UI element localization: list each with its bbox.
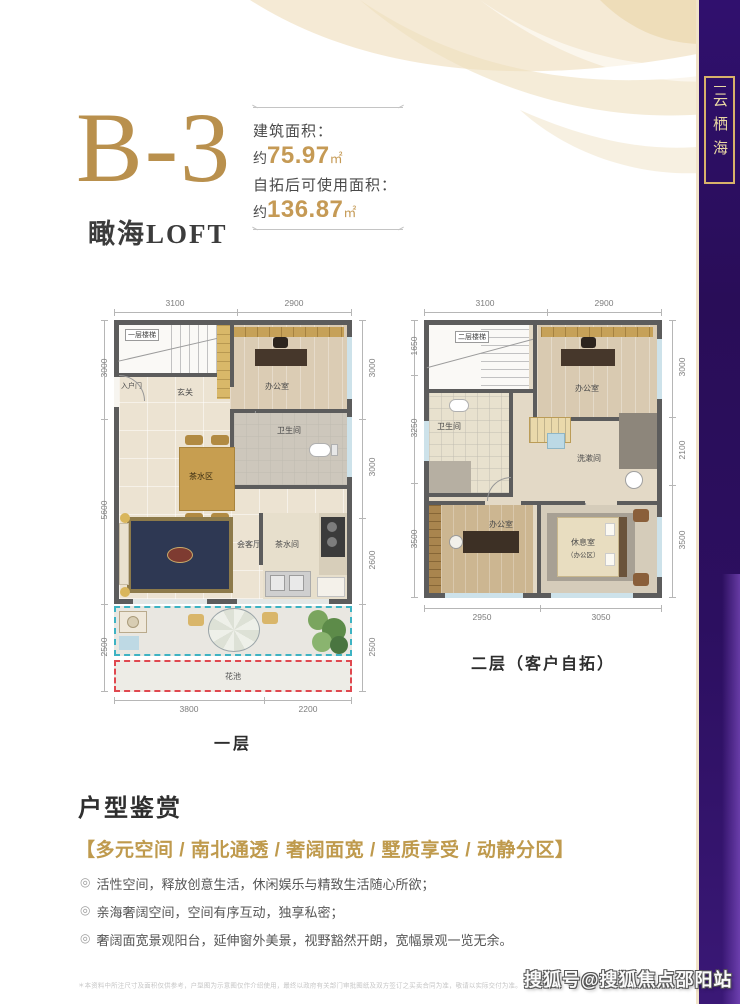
- balcony-door: [133, 599, 207, 604]
- balcony-door: [237, 599, 329, 604]
- floor2-building: 二层楼梯 办公室 卫生间 洗漱间: [424, 320, 662, 598]
- window: [424, 421, 429, 461]
- entry-door-arc: [119, 375, 145, 401]
- floor2-dim-top-1: 3100: [455, 298, 515, 308]
- office2-chair: [449, 535, 463, 549]
- toilet: [449, 399, 469, 412]
- floor1-stairs-label: 一层楼梯: [125, 329, 159, 341]
- built-area-unit: ㎡: [330, 151, 343, 166]
- dim-tick: [264, 697, 265, 704]
- office-floor: [537, 325, 657, 417]
- floor1-dim-right-2: 3000: [367, 447, 377, 487]
- floor2-dim-right-2: 2100: [677, 430, 687, 470]
- window: [657, 517, 662, 577]
- bullet-item: ◎ 活性空间，释放创意生活，休闲娱乐与精致生活随心所欲；: [80, 874, 513, 893]
- floor1-foyer-label: 玄关: [177, 387, 193, 398]
- poster-page: 云栖海 B-3 瞰海LOFT 建筑面积： 约75.97㎡ 自拓后可使用面积： 约…: [0, 0, 740, 1004]
- dim-line: [362, 320, 363, 692]
- window: [347, 337, 352, 399]
- dim-tick: [351, 697, 352, 704]
- dim-tick: [669, 597, 676, 598]
- sink-basin: [289, 575, 304, 591]
- dark-tile: [619, 413, 657, 469]
- dim-tick: [114, 697, 115, 704]
- wall: [230, 325, 234, 387]
- floor1-dim-right-1: 3000: [367, 348, 377, 388]
- dim-line: [424, 312, 662, 313]
- floor1-pantry-label: 茶水间: [275, 539, 299, 550]
- floor1-dim-bottom-2: 2200: [278, 704, 338, 714]
- dim-tick: [669, 320, 676, 321]
- project-name-box: 云栖海: [704, 76, 735, 184]
- burner: [327, 522, 337, 532]
- pillow: [605, 523, 615, 536]
- unit-code: B-3: [76, 98, 232, 198]
- rug-medallion: [167, 547, 193, 563]
- usable-area-unit: ㎡: [343, 205, 356, 220]
- window: [445, 593, 523, 598]
- floor2-lounge-sub-label: （办公区）: [567, 549, 600, 559]
- nightstand: [633, 509, 649, 522]
- bullet-item: ◎ 奢阔面宽景观阳台，延伸窗外美景，视野豁然开朗，宽幅景观一览无余。: [80, 930, 513, 949]
- office-closet: [233, 327, 344, 337]
- floor1-balcony: [114, 606, 352, 656]
- dim-tick: [359, 419, 366, 420]
- floor1-dim-left-3: 2500: [99, 627, 109, 667]
- floor1-flower-bed: 花池: [114, 660, 352, 692]
- dim-tick: [411, 597, 418, 598]
- floor1-dim-bottom-1: 3800: [159, 704, 219, 714]
- watermark: 搜狐号@搜狐焦点邵阳站: [524, 966, 733, 992]
- office-desk: [561, 349, 615, 366]
- floor1-caption: 一层: [96, 730, 370, 754]
- spec-block: 建筑面积： 约75.97㎡ 自拓后可使用面积： 约136.87㎡: [253, 120, 463, 229]
- dim-tick: [101, 320, 108, 321]
- floor2-dim-top-2: 2900: [574, 298, 634, 308]
- bookshelf: [429, 505, 441, 593]
- dim-tick: [359, 320, 366, 321]
- stair-treads: [171, 325, 217, 373]
- balcony-cabinet: [119, 611, 147, 633]
- dim-tick: [661, 309, 662, 316]
- plants: [308, 608, 350, 654]
- dim-tick: [411, 483, 418, 484]
- floor1-dim-right-4: 2500: [367, 627, 377, 667]
- nightstand: [633, 573, 649, 586]
- floor2-lounge-label: 休息室: [571, 537, 595, 548]
- plant: [312, 632, 332, 652]
- appreciation-highlight: 【多元空间 / 南北通透 / 奢阔面宽 / 墅质享受 / 动静分区】: [76, 835, 574, 862]
- chair: [185, 435, 203, 445]
- floor1-dim-top-1: 3100: [145, 298, 205, 308]
- dim-tick: [669, 417, 676, 418]
- dim-tick: [359, 691, 366, 692]
- office-desk: [255, 349, 307, 366]
- floor-lamp: [120, 587, 130, 597]
- floor1-living-label: 会客厅: [237, 539, 261, 550]
- floor-lamp: [120, 513, 130, 523]
- window: [347, 417, 352, 477]
- approx-prefix-2: 约: [253, 204, 267, 220]
- toilet-tank: [331, 444, 338, 456]
- floor1-dim-right-3: 2600: [367, 540, 377, 580]
- floor2-bathroom-label: 卫生间: [437, 421, 461, 432]
- banner-dash: [714, 86, 726, 87]
- floor1-dim-left-1: 3000: [99, 348, 109, 388]
- floor1-office-label: 办公室: [265, 381, 289, 392]
- dim-tick: [411, 375, 418, 376]
- chair: [211, 435, 229, 445]
- bullet-text: 亲海奢阔空间，空间有序互动，独享私密；: [96, 902, 343, 921]
- usable-area-number: 136.87: [267, 196, 343, 223]
- floor2-dim-left-2: 3250: [409, 408, 419, 448]
- shower: [429, 461, 471, 493]
- floor2-dim-left-1: 1650: [409, 326, 419, 366]
- dim-tick: [540, 605, 541, 612]
- floor2-dim-right-3: 3500: [677, 520, 687, 560]
- balcony-mat: [119, 636, 139, 650]
- chair: [262, 612, 278, 624]
- burner: [327, 537, 337, 547]
- basin-circle: [127, 616, 139, 628]
- appreciation-title: 户型鉴赏: [78, 788, 182, 823]
- plant: [330, 636, 348, 654]
- project-name: 云栖海: [709, 92, 730, 164]
- washing-machine: [625, 471, 643, 489]
- dim-tick: [114, 309, 115, 316]
- side-banner-glow: [722, 574, 740, 1004]
- usable-area-label: 自拓后可使用面积：: [253, 174, 463, 195]
- dim-tick: [424, 605, 425, 612]
- headboard: [619, 517, 627, 577]
- approx-prefix: 约: [253, 150, 267, 166]
- appreciation-bullets: ◎ 活性空间，释放创意生活，休闲娱乐与精致生活随心所欲； ◎ 亲海奢阔空间，空间…: [80, 874, 513, 958]
- floor1-bathroom-label: 卫生间: [277, 425, 301, 436]
- office-chair: [581, 337, 596, 348]
- dim-tick: [351, 309, 352, 316]
- built-area-number: 75.97: [267, 142, 330, 169]
- floor2-dim-right-1: 3000: [677, 347, 687, 387]
- dim-tick: [411, 320, 418, 321]
- floor1-body: 一层楼梯 办公室 卫生间 玄关 入户门: [114, 320, 352, 692]
- umbrella-table: [208, 608, 260, 652]
- floor2-washroom-label: 洗漱间: [577, 453, 601, 464]
- bullet-text: 奢阔面宽景观阳台，延伸窗外美景，视野豁然开朗，宽幅景观一览无余。: [96, 930, 512, 949]
- wall: [537, 505, 541, 593]
- floor2-dim-bottom-1: 2950: [452, 612, 512, 622]
- dim-tick: [237, 309, 238, 316]
- office-chair: [273, 337, 288, 348]
- wardrobe-cabinet: [217, 325, 230, 399]
- wall: [533, 325, 537, 421]
- office-floor: [230, 325, 347, 409]
- bullet-item: ◎ 亲海奢阔空间，空间有序互动，独享私密；: [80, 902, 513, 921]
- dim-tick: [359, 604, 366, 605]
- dim-line: [424, 608, 662, 609]
- floor1-plan: 3100 2900 3000 5600 2500 3000 3000 2600 …: [96, 298, 386, 758]
- floor1-dim-top-2: 2900: [264, 298, 324, 308]
- built-area-value: 约75.97㎡: [253, 143, 463, 169]
- floor1-tea-area-label: 茶水区: [189, 471, 213, 482]
- disclaimer-text: ＊本资料中所注尺寸及面积仅供参考，户型图为示意图仅作介绍使用，最终以政府有关部门…: [78, 981, 522, 990]
- dim-line: [672, 320, 673, 598]
- office-closet: [541, 327, 653, 337]
- spec-rule-top: [253, 107, 403, 108]
- dim-tick: [661, 605, 662, 612]
- sofa: [119, 523, 129, 585]
- washer-blue: [547, 433, 565, 449]
- chair: [188, 614, 204, 626]
- window: [657, 339, 662, 399]
- dim-line: [114, 700, 352, 701]
- bullet-icon: ◎: [80, 902, 90, 921]
- kitchen-box: [317, 577, 345, 597]
- floor2-caption: 二层（客户自拓）: [406, 650, 680, 674]
- wall: [230, 485, 347, 489]
- built-area-label: 建筑面积：: [253, 120, 463, 141]
- bullet-icon: ◎: [80, 930, 90, 949]
- dim-line: [114, 312, 352, 313]
- bullet-text: 活性空间，释放创意生活，休闲娱乐与精致生活随心所欲；: [96, 874, 434, 893]
- floor1-building: 一层楼梯 办公室 卫生间 玄关 入户门: [114, 320, 352, 604]
- unit-subtitle: 瞰海LOFT: [88, 212, 228, 251]
- floor2-plan: 3100 2900 1650 3250 3500 3000 2100 3500 …: [406, 298, 696, 698]
- dim-tick: [669, 485, 676, 486]
- pillow: [605, 553, 615, 566]
- dim-tick: [359, 518, 366, 519]
- floor2-stairs-label: 二层楼梯: [455, 331, 489, 343]
- flower-bed-label: 花池: [116, 671, 350, 682]
- wall: [259, 513, 263, 565]
- window: [551, 593, 633, 598]
- floor2-office-bottom-label: 办公室: [489, 519, 513, 530]
- office2-desk: [463, 531, 519, 553]
- dim-tick: [101, 691, 108, 692]
- spec-rule-bottom: [253, 229, 403, 230]
- dim-tick: [101, 419, 108, 420]
- dim-tick: [424, 309, 425, 316]
- sink-basin: [270, 575, 285, 591]
- floor1-dim-left-2: 5600: [99, 490, 109, 530]
- wall: [119, 373, 217, 377]
- dim-tick: [547, 309, 548, 316]
- toilet: [309, 443, 331, 457]
- usable-area-value: 约136.87㎡: [253, 197, 463, 223]
- dim-tick: [101, 604, 108, 605]
- floor2-dim-left-3: 3500: [409, 519, 419, 559]
- bullet-icon: ◎: [80, 874, 90, 893]
- floor2-dim-bottom-2: 3050: [571, 612, 631, 622]
- floor2-office-top-label: 办公室: [575, 383, 599, 394]
